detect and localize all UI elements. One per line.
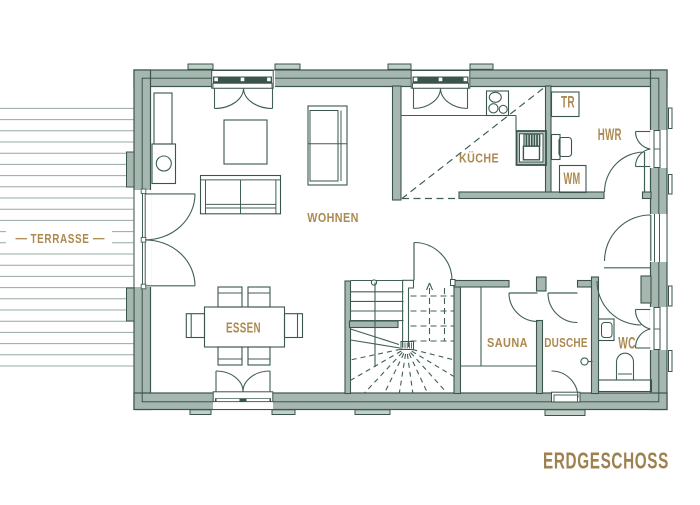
svg-text:TR: TR	[561, 93, 575, 112]
svg-text:DUSCHE: DUSCHE	[544, 335, 588, 350]
svg-text:WM: WM	[564, 169, 581, 188]
svg-text:KÜCHE: KÜCHE	[459, 151, 499, 166]
svg-text:TERRASSE: TERRASSE	[31, 232, 90, 246]
svg-text:HWR: HWR	[598, 125, 622, 144]
svg-text:ESSEN: ESSEN	[226, 321, 261, 337]
svg-text:WC: WC	[618, 334, 636, 353]
svg-text:SAUNA: SAUNA	[487, 335, 528, 350]
svg-text:ERDGESCHOSS: ERDGESCHOSS	[543, 448, 669, 474]
svg-text:WOHNEN: WOHNEN	[307, 210, 359, 225]
